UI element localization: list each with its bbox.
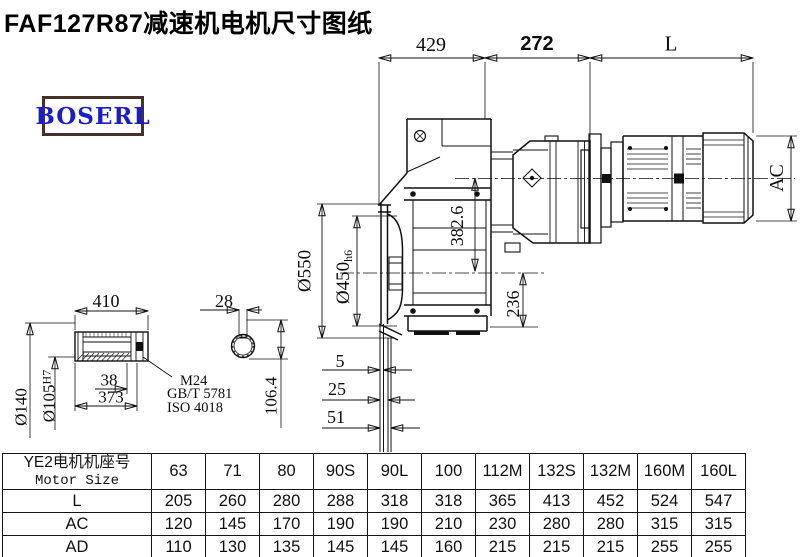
brand-logo-text: BOSERL: [35, 103, 150, 130]
table-header-cell: 90L: [368, 454, 422, 490]
dim-label-shaft-od: Ø140: [13, 388, 30, 426]
table-cell: 145: [206, 513, 260, 536]
table-header-cell: 160M: [638, 454, 692, 490]
table-cell: 315: [692, 513, 746, 536]
table-cell: 318: [368, 490, 422, 513]
table-header-motor-size: YE2电机机座号Motor Size: [3, 454, 152, 490]
table-header-cell: 100: [422, 454, 476, 490]
table-cell: 145: [368, 536, 422, 557]
table-cell: 110: [152, 536, 206, 557]
dim-label-373: 373: [98, 389, 124, 406]
table-cell: 205: [152, 490, 206, 513]
dim-label-51: 51: [327, 408, 345, 426]
dim-label-key-height: 106.4: [263, 377, 280, 415]
table-cell: 280: [584, 513, 638, 536]
table-header-cell: 71: [206, 454, 260, 490]
table-cell: 130: [206, 536, 260, 557]
table-cell: 365: [476, 490, 530, 513]
table-header-cell: 80: [260, 454, 314, 490]
dim-label-bore: Ø105H7: [41, 370, 58, 422]
dim-label-236: 236: [504, 291, 522, 318]
table-cell: 135: [260, 536, 314, 557]
dim-label-38: 38: [101, 372, 118, 389]
drawing-sheet: FAF127R87减速机电机尺寸图纸 BOSERL 429 272 L AC Ø…: [0, 0, 800, 557]
table-cell: 255: [692, 536, 746, 557]
dim-label-410: 410: [93, 292, 120, 310]
table-cell: 452: [584, 490, 638, 513]
table-cell: 288: [314, 490, 368, 513]
table-row-label: AD: [3, 536, 152, 557]
table-cell: 315: [638, 513, 692, 536]
table-cell: 524: [638, 490, 692, 513]
table-cell: 190: [314, 513, 368, 536]
table-row: AC120145170190190210230280280315315: [3, 513, 746, 536]
dim-label-272: 272: [520, 34, 553, 54]
callout-standard-iso: ISO 4018: [167, 401, 223, 416]
dim-label-AC: AC: [767, 164, 787, 192]
table-row: AD110130135145145160215215215255255: [3, 536, 746, 557]
table-cell: 190: [368, 513, 422, 536]
motor-size-table: YE2电机机座号Motor Size63718090S90L100112M132…: [2, 453, 746, 557]
table-header-cell: 63: [152, 454, 206, 490]
table-cell: 255: [638, 536, 692, 557]
page-title: FAF127R87减速机电机尺寸图纸: [4, 4, 373, 40]
table-cell: 230: [476, 513, 530, 536]
table-cell: 160: [422, 536, 476, 557]
table-cell: 170: [260, 513, 314, 536]
motor-size-table-body: YE2电机机座号Motor Size63718090S90L100112M132…: [3, 454, 746, 557]
dim-label-429: 429: [416, 35, 446, 55]
dim-label-382: 382.6: [448, 206, 466, 247]
dim-label-28: 28: [215, 292, 233, 310]
dim-label-L: L: [665, 34, 678, 55]
table-row-label: AC: [3, 513, 152, 536]
brand-logo: BOSERL: [42, 96, 144, 136]
table-cell: 215: [530, 536, 584, 557]
table-cell: 145: [314, 536, 368, 557]
table-cell: 413: [530, 490, 584, 513]
table-cell: 318: [422, 490, 476, 513]
table-header-cell: 160L: [692, 454, 746, 490]
table-cell: 215: [584, 536, 638, 557]
table-cell: 260: [206, 490, 260, 513]
table-header-cn: YE2电机机座号: [3, 454, 151, 473]
table-cell: 210: [422, 513, 476, 536]
table-header-cell: 90S: [314, 454, 368, 490]
table-row: L205260280288318318365413452524547: [3, 490, 746, 513]
table-cell: 280: [260, 490, 314, 513]
table-header-cell: 132S: [530, 454, 584, 490]
table-header-en: Motor Size: [3, 473, 151, 489]
table-cell: 120: [152, 513, 206, 536]
table-header-cell: 132M: [584, 454, 638, 490]
dim-label-flange-od: Ø550: [296, 250, 315, 292]
table-cell: 215: [476, 536, 530, 557]
dim-label-spigot: Ø450h6: [334, 250, 354, 304]
dim-label-25: 25: [328, 380, 346, 398]
table-cell: 280: [530, 513, 584, 536]
table-row-label: L: [3, 490, 152, 513]
table-cell: 547: [692, 490, 746, 513]
dim-label-5: 5: [336, 352, 345, 370]
table-header-cell: 112M: [476, 454, 530, 490]
